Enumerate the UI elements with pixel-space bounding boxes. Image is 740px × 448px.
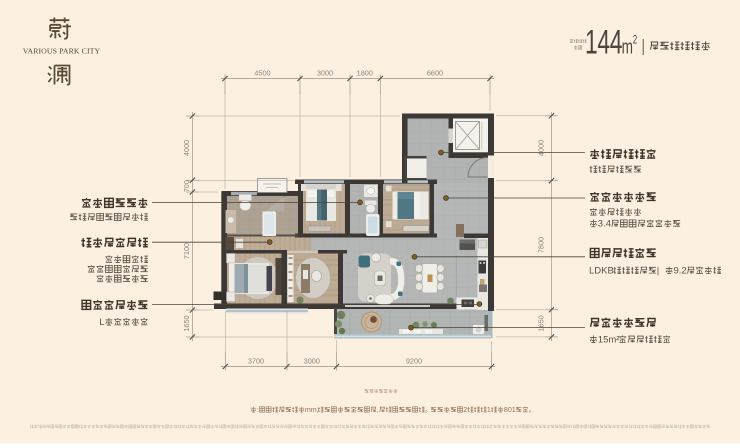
svg-text:LDKB: LDKB (589, 266, 614, 277)
svg-text:7100: 7100 (182, 243, 191, 259)
svg-text:144: 144 (585, 23, 622, 62)
svg-text:801: 801 (504, 406, 516, 414)
svg-text:,: , (377, 406, 379, 414)
svg-text:9.2: 9.2 (674, 266, 687, 277)
svg-text:1: 1 (487, 406, 491, 414)
svg-text:1650: 1650 (537, 315, 546, 331)
svg-text:VARIOUS PARK CITY: VARIOUS PARK CITY (23, 47, 101, 56)
svg-text:3.4: 3.4 (598, 219, 611, 230)
svg-text:1800: 1800 (357, 69, 373, 78)
svg-text:15m²: 15m² (598, 335, 620, 346)
svg-text:m: m (622, 36, 633, 58)
svg-text:3000: 3000 (304, 357, 320, 366)
svg-text:4000: 4000 (182, 140, 191, 156)
svg-text::: : (257, 406, 259, 414)
svg-text:4500: 4500 (254, 69, 270, 78)
svg-text:9200: 9200 (406, 357, 422, 366)
svg-text:L: L (99, 317, 104, 328)
svg-text:3000: 3000 (317, 69, 333, 78)
svg-text:2: 2 (463, 406, 467, 414)
svg-text:1650: 1650 (182, 315, 191, 331)
svg-text:4000: 4000 (537, 140, 546, 156)
svg-text:mm,: mm, (305, 406, 319, 414)
svg-text:2: 2 (633, 34, 638, 47)
svg-text:|: | (657, 266, 659, 277)
svg-text:6600: 6600 (427, 69, 443, 78)
svg-text:3700: 3700 (248, 357, 264, 366)
svg-text:7800: 7800 (537, 237, 546, 253)
svg-text:700: 700 (182, 180, 191, 192)
